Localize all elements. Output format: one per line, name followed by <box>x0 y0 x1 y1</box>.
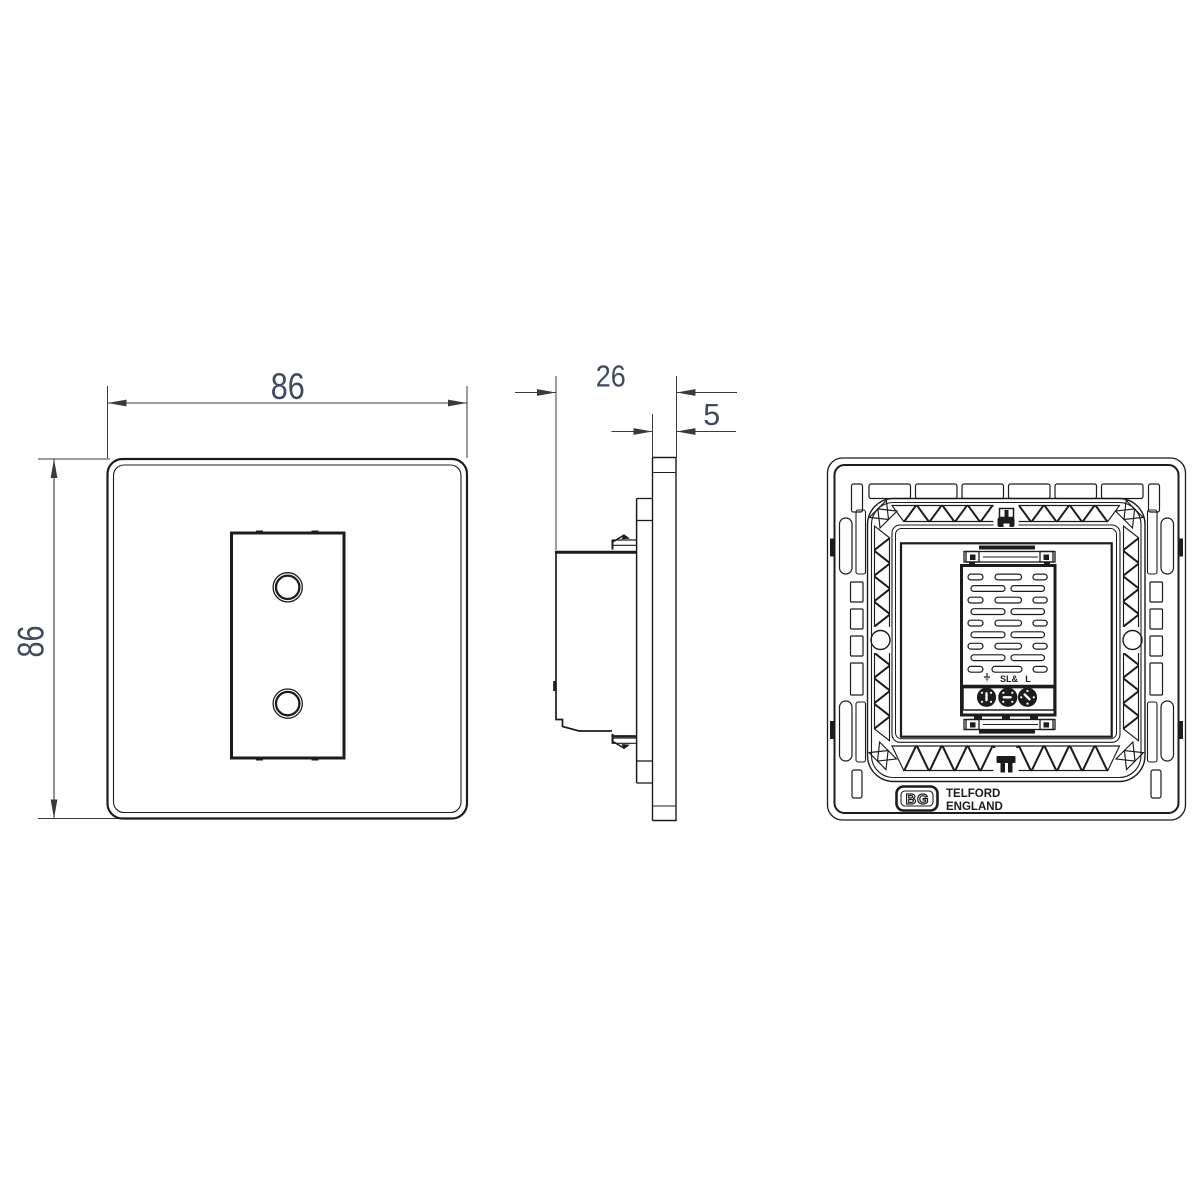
svg-text:TELFORD: TELFORD <box>946 788 1000 800</box>
svg-text:86: 86 <box>271 366 305 407</box>
svg-text:L: L <box>1025 674 1031 684</box>
svg-text:BG: BG <box>906 792 930 808</box>
svg-text:26: 26 <box>596 360 626 394</box>
svg-text:SL&: SL& <box>1000 674 1019 684</box>
svg-text:ENGLAND: ENGLAND <box>946 801 1003 813</box>
svg-text:86: 86 <box>11 626 52 658</box>
svg-text:5: 5 <box>703 398 720 432</box>
